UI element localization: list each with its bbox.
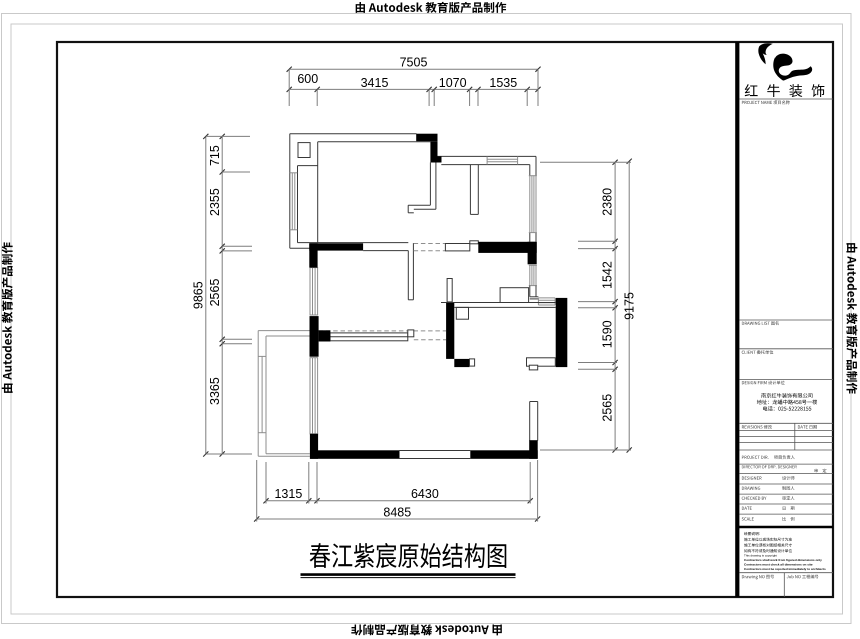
- svg-text:7505: 7505: [400, 56, 428, 70]
- svg-text:1535: 1535: [489, 76, 517, 90]
- svg-text:600: 600: [297, 72, 318, 86]
- svg-text:1542: 1542: [601, 261, 615, 289]
- svg-text:3365: 3365: [208, 377, 222, 405]
- svg-text:1315: 1315: [274, 487, 302, 501]
- svg-text:2565: 2565: [208, 279, 222, 307]
- svg-text:715: 715: [208, 145, 222, 166]
- svg-text:3415: 3415: [361, 76, 389, 90]
- svg-text:This drawing is copyright: This drawing is copyright: [744, 553, 777, 557]
- svg-text:6430: 6430: [411, 487, 439, 501]
- svg-text:8485: 8485: [383, 505, 411, 519]
- svg-text:Contractors shall work from fi: Contractors shall work from figured dime…: [744, 558, 822, 562]
- svg-text:9175: 9175: [623, 292, 637, 320]
- svg-text:2355: 2355: [208, 188, 222, 216]
- svg-text:2565: 2565: [601, 394, 615, 422]
- svg-text:9865: 9865: [192, 281, 206, 309]
- svg-text:Contractors must be reported i: Contractors must be reported immediately…: [744, 567, 826, 571]
- svg-text:2380: 2380: [601, 188, 615, 216]
- svg-text:1070: 1070: [439, 76, 467, 90]
- svg-text:Contractors must check all dim: Contractors must check all dimensions on…: [744, 563, 813, 567]
- svg-text:1590: 1590: [601, 320, 615, 348]
